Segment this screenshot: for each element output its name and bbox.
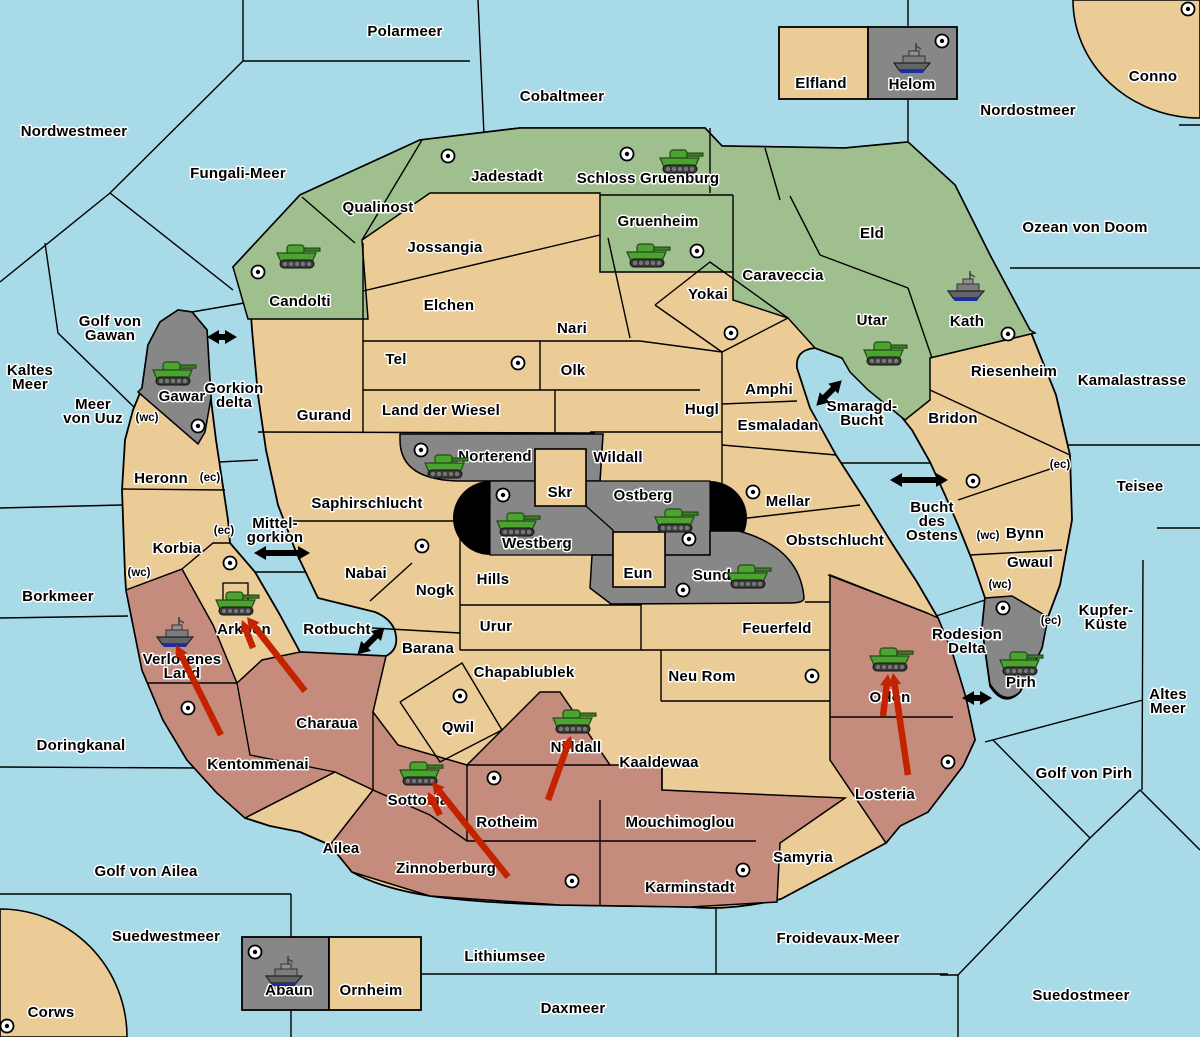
territory-label-urur[interactable]: Urur <box>480 618 512 635</box>
territory-label-text[interactable]: Kaaldewaa <box>619 754 699 771</box>
city-marker <box>967 475 980 488</box>
city-marker <box>1 1020 14 1033</box>
territory-label-amphi[interactable]: Amphi <box>745 381 793 398</box>
territory-label-utar[interactable]: Utar <box>857 312 888 329</box>
territory-label-text[interactable]: Land der Wiesel <box>382 402 500 419</box>
territory-label-conno[interactable]: Conno <box>1129 68 1177 85</box>
sea-label-ozean-von-doom: Ozean von Doom <box>1022 219 1147 236</box>
territory-label-ornheim[interactable]: Ornheim <box>339 982 402 999</box>
territory-label-text[interactable]: Pirh <box>1006 674 1036 691</box>
territory-label-text[interactable]: Amphi <box>745 381 793 398</box>
sea-label-text: Borkmeer <box>22 588 94 605</box>
territory-label-nabai[interactable]: Nabai <box>345 565 387 582</box>
city-marker <box>737 864 750 877</box>
territory-label-text[interactable]: Wildall <box>593 449 643 466</box>
territory-label-gruenheim[interactable]: Gruenheim <box>618 213 699 230</box>
territory-label-text[interactable]: Charaua <box>296 715 358 732</box>
territory-label-bynn[interactable]: Bynn <box>1006 525 1044 542</box>
territory-label-text[interactable]: Neu Rom <box>668 668 735 685</box>
sea-label-text: Froidevaux-Meer <box>776 930 899 947</box>
territory-label-chapablublek[interactable]: Chapablublek <box>474 664 575 681</box>
territory-label-text[interactable]: Jossangia <box>407 239 483 256</box>
territory-label-text[interactable]: Urur <box>480 618 512 635</box>
territory-label-corws[interactable]: Corws <box>28 1004 75 1021</box>
sea-label-kamalastrasse: Kamalastrasse <box>1078 372 1187 389</box>
sea-label-text: Teisee <box>1117 478 1164 495</box>
city-marker <box>192 420 205 433</box>
sea-label-mittel-gorkion: Mittel-gorkion <box>247 515 303 546</box>
territory-label-skr[interactable]: Skr <box>548 484 573 501</box>
sea-label-text: Ozean von Doom <box>1022 219 1147 236</box>
city-marker <box>497 489 510 502</box>
territory-label-text[interactable]: Samyria <box>773 849 833 866</box>
territory-label-kaaldewaa[interactable]: Kaaldewaa <box>619 754 699 771</box>
territory-label-text[interactable]: Nilldall <box>551 739 602 756</box>
sea-label-golf-von-gawan: Golf vonGawan <box>79 313 141 344</box>
territory-label-jossangia[interactable]: Jossangia <box>407 239 483 256</box>
sea-label-text: Fungali-Meer <box>190 165 286 182</box>
territory-label-hugl[interactable]: Hugl <box>685 401 719 418</box>
territory-label-text[interactable]: Feuerfeld <box>742 620 811 637</box>
territory-label-text[interactable]: Rotheim <box>476 814 537 831</box>
territory-label-tel[interactable]: Tel <box>385 351 406 368</box>
territory-label-text[interactable]: Qwil <box>442 719 474 736</box>
sea-label-text: Suedwestmeer <box>112 928 220 945</box>
territory-label-text[interactable]: Corws <box>28 1004 75 1021</box>
city-marker <box>936 35 949 48</box>
city-marker <box>806 670 819 683</box>
territory-label-neu-rom[interactable]: Neu Rom <box>668 668 735 685</box>
territory-label-zinnoberburg[interactable]: Zinnoberburg <box>396 860 496 877</box>
city-marker <box>621 148 634 161</box>
territory-label-kath[interactable]: Kath <box>950 313 984 330</box>
territory-label-text[interactable]: Westberg <box>502 535 572 552</box>
territory-label-text[interactable]: Bridon <box>928 410 978 427</box>
sea-label-text: von Uuz <box>63 410 123 427</box>
territory-label-yokai[interactable]: Yokai <box>688 286 728 303</box>
territory-label-gurand[interactable]: Gurand <box>297 407 352 424</box>
city-marker <box>725 327 738 340</box>
territory-label-text[interactable]: Yokai <box>688 286 728 303</box>
territory-label-text[interactable]: Nogk <box>416 582 455 599</box>
territory-label-charaua[interactable]: Charaua <box>296 715 358 732</box>
territory-label-text[interactable]: Conno <box>1129 68 1177 85</box>
territory-label-text[interactable]: Riesenheim <box>971 363 1057 380</box>
coast-token: (wc) <box>977 530 1000 542</box>
territory-label-text[interactable]: Esmaladan <box>737 417 818 434</box>
coast-token: (ec) <box>1050 459 1071 471</box>
city-marker <box>942 756 955 769</box>
territory-label-qwil[interactable]: Qwil <box>442 719 474 736</box>
territory-label-text[interactable]: Gawar <box>159 388 206 405</box>
territory-label-westberg[interactable]: Westberg <box>502 535 572 552</box>
sea-label-kaltes-meer: KaltesMeer <box>7 362 53 393</box>
sea-label-text: Kamalastrasse <box>1078 372 1187 389</box>
territory-label-sund[interactable]: Sund <box>693 567 731 584</box>
territory-label-text[interactable]: Norterend <box>458 448 531 465</box>
territory-label-text[interactable]: Barana <box>402 640 455 657</box>
sea-label-text: Ostens <box>906 527 958 544</box>
territory-label-text[interactable]: Obstschlucht <box>786 532 884 549</box>
sea-label-text: Daxmeer <box>541 1000 606 1017</box>
sea-label-text: Doringkanal <box>37 737 126 754</box>
territory-label-schloss-gruenburg[interactable]: Schloss Gruenburg <box>577 170 720 187</box>
territory-label-text[interactable]: Karminstadt <box>645 879 735 896</box>
sea-label-cobaltmeer: Cobaltmeer <box>520 88 605 105</box>
sea-label-text: Küste <box>1085 616 1128 633</box>
territory-label-text[interactable]: Chapablublek <box>474 664 575 681</box>
city-marker <box>252 266 265 279</box>
sea-label-golf-von-pirh: Golf von Pirh <box>1036 765 1133 782</box>
sea-label-altes-meer: AltesMeer <box>1149 686 1187 717</box>
territory-border-line <box>123 489 225 490</box>
territory-label-ostberg[interactable]: Ostberg <box>614 487 673 504</box>
sea-label-nordwestmeer: Nordwestmeer <box>21 123 128 140</box>
territory-label-kentommenai[interactable]: Kentommenai <box>207 756 308 773</box>
map-canvas: PolarmeerCobaltmeerNordwestmeerFungali-M… <box>0 0 1200 1037</box>
territory-label-text[interactable]: Schloss Gruenburg <box>577 170 720 187</box>
city-marker <box>416 540 429 553</box>
territory-label-text[interactable]: Jadestadt <box>471 168 543 185</box>
territory-label-text[interactable]: Eun <box>624 565 653 582</box>
sea-label-suedwestmeer: Suedwestmeer <box>112 928 220 945</box>
sea-label-borkmeer: Borkmeer <box>22 588 94 605</box>
city-marker <box>1182 3 1195 16</box>
city-marker <box>442 150 455 163</box>
city-marker <box>997 602 1010 615</box>
territory-label-nilldall[interactable]: Nilldall <box>551 739 602 756</box>
territory-label-riesenheim[interactable]: Riesenheim <box>971 363 1057 380</box>
sea-label-text: Cobaltmeer <box>520 88 605 105</box>
sea-label-kupfer-k-ste: Kupfer-Küste <box>1079 602 1134 633</box>
territory-label-gawar[interactable]: Gawar <box>159 388 206 405</box>
territory-label-caraveccia[interactable]: Caraveccia <box>742 267 824 284</box>
territory-label-text[interactable]: Candolti <box>269 293 331 310</box>
sea-label-text: Nordwestmeer <box>21 123 128 140</box>
sea-label-nordostmeer: Nordostmeer <box>980 102 1076 119</box>
city-marker <box>182 702 195 715</box>
territory-label-rotheim[interactable]: Rotheim <box>476 814 537 831</box>
sea-label-text: Lithiumsee <box>464 948 545 965</box>
territory-shape-ornheim[interactable] <box>329 937 421 1010</box>
territory-label-text[interactable]: Orlon <box>870 689 911 706</box>
territory-label-bridon[interactable]: Bridon <box>928 410 978 427</box>
territory-label-losteria[interactable]: Losteria <box>855 786 915 803</box>
territory-label-helom[interactable]: Helom <box>889 76 936 93</box>
territory-label-candolti[interactable]: Candolti <box>269 293 331 310</box>
territory-label-text[interactable]: Kath <box>950 313 984 330</box>
territory-label-qualinost[interactable]: Qualinost <box>343 199 414 216</box>
sea-label-rotbucht: Rotbucht <box>303 621 370 638</box>
territory-label-heronn[interactable]: Heronn <box>134 470 188 487</box>
sea-label-fungali-meer: Fungali-Meer <box>190 165 286 182</box>
territory-label-text[interactable]: Caraveccia <box>742 267 824 284</box>
territory-label-mellar[interactable]: Mellar <box>766 493 811 510</box>
sea-label-text: Polarmeer <box>367 23 442 40</box>
sea-label-teisee: Teisee <box>1117 478 1164 495</box>
territory-label-text[interactable]: Mellar <box>766 493 811 510</box>
city-marker <box>224 557 237 570</box>
territory-label-text[interactable]: Nari <box>557 320 587 337</box>
territory-label-orlon[interactable]: Orlon <box>870 689 911 706</box>
sea-label-froidevaux-meer: Froidevaux-Meer <box>776 930 899 947</box>
city-marker <box>1002 328 1015 341</box>
territory-label-eld[interactable]: Eld <box>860 225 884 242</box>
territory-label-text[interactable]: Sund <box>693 567 731 584</box>
territory-label-nogk[interactable]: Nogk <box>416 582 455 599</box>
territory-label-norterend[interactable]: Norterend <box>458 448 531 465</box>
territory-label-text[interactable]: Heronn <box>134 470 188 487</box>
territory-label-text[interactable]: Elfland <box>795 75 846 92</box>
sea-label-doringkanal: Doringkanal <box>37 737 126 754</box>
territory-label-text[interactable]: Tel <box>385 351 406 368</box>
territory-label-korbia[interactable]: Korbia <box>153 540 202 557</box>
territory-label-obstschlucht[interactable]: Obstschlucht <box>786 532 884 549</box>
sea-label-text: Bucht <box>840 412 884 429</box>
territory-label-text[interactable]: Elchen <box>424 297 474 314</box>
territory-label-text[interactable]: Helom <box>889 76 936 93</box>
sea-label-text: Nordostmeer <box>980 102 1076 119</box>
city-marker <box>683 533 696 546</box>
sea-label-daxmeer: Daxmeer <box>541 1000 606 1017</box>
territory-label-text[interactable]: Ailea <box>323 840 360 857</box>
sea-label-text: Delta <box>948 640 986 657</box>
territory-label-text[interactable]: Korbia <box>153 540 202 557</box>
city-marker <box>415 444 428 457</box>
territory-label-text[interactable]: Nabai <box>345 565 387 582</box>
sea-label-text: delta <box>216 394 252 411</box>
territory-label-elfland[interactable]: Elfland <box>795 75 846 92</box>
territory-label-text[interactable]: Losteria <box>855 786 915 803</box>
sea-label-text: Golf von Pirh <box>1036 765 1133 782</box>
territory-label-esmaladan[interactable]: Esmaladan <box>737 417 818 434</box>
territory-label-text[interactable]: Hills <box>477 571 510 588</box>
sea-label-text: Suedostmeer <box>1032 987 1129 1004</box>
territory-label-text[interactable]: Gwaul <box>1007 554 1053 571</box>
territory-label-text[interactable]: Olk <box>561 362 586 379</box>
coast-token: (wc) <box>128 567 151 579</box>
sea-border-line <box>0 767 200 768</box>
territory-label-text[interactable]: Skr <box>548 484 573 501</box>
sea-label-text: gorkion <box>247 529 303 546</box>
sea-label-text: Golf von Ailea <box>94 863 198 880</box>
territory-label-karminstadt[interactable]: Karminstadt <box>645 879 735 896</box>
sea-label-text: Meer <box>1150 700 1186 717</box>
territory-label-jadestadt[interactable]: Jadestadt <box>471 168 543 185</box>
territory-label-feuerfeld[interactable]: Feuerfeld <box>742 620 811 637</box>
territory-label-eun[interactable]: Eun <box>624 565 653 582</box>
territory-label-text[interactable]: Eld <box>860 225 884 242</box>
city-marker <box>454 690 467 703</box>
city-marker <box>512 357 525 370</box>
territory-label-text[interactable]: Zinnoberburg <box>396 860 496 877</box>
territory-label-text[interactable]: Ostberg <box>614 487 673 504</box>
territory-label-text[interactable]: Hugl <box>685 401 719 418</box>
territory-label-text[interactable]: Kentommenai <box>207 756 308 773</box>
sea-label-text: Gawan <box>85 327 135 344</box>
game-map: PolarmeerCobaltmeerNordwestmeerFungali-M… <box>0 0 1200 1037</box>
sea-label-text: Meer <box>12 376 48 393</box>
coast-token: (ec) <box>200 472 221 484</box>
territory-label-text[interactable]: Ornheim <box>339 982 402 999</box>
territory-label-text[interactable]: Mouchimoglou <box>625 814 734 831</box>
city-marker <box>249 946 262 959</box>
coast-token: (wc) <box>136 412 159 424</box>
city-marker <box>677 584 690 597</box>
coast-token: (wc) <box>989 579 1012 591</box>
territory-label-text[interactable]: Bynn <box>1006 525 1044 542</box>
territory-label-mouchimoglou[interactable]: Mouchimoglou <box>625 814 734 831</box>
territory-label-gwaul[interactable]: Gwaul <box>1007 554 1053 571</box>
territory-label-barana[interactable]: Barana <box>402 640 455 657</box>
city-marker <box>566 875 579 888</box>
sea-label-golf-von-ailea: Golf von Ailea <box>94 863 198 880</box>
territory-label-text[interactable]: Qualinost <box>343 199 414 216</box>
sea-label-polarmeer: Polarmeer <box>367 23 442 40</box>
territory-label-hills[interactable]: Hills <box>477 571 510 588</box>
city-marker <box>747 486 760 499</box>
city-marker <box>488 772 501 785</box>
territory-label-text[interactable]: Gruenheim <box>618 213 699 230</box>
coast-token: (ec) <box>1041 615 1062 627</box>
territory-label-saphirschlucht[interactable]: Saphirschlucht <box>311 495 422 512</box>
territory-label-olk[interactable]: Olk <box>561 362 586 379</box>
territory-label-pirh[interactable]: Pirh <box>1006 674 1036 691</box>
territory-label-text[interactable]: Utar <box>857 312 888 329</box>
territory-label-elchen[interactable]: Elchen <box>424 297 474 314</box>
sea-label-lithiumsee: Lithiumsee <box>464 948 545 965</box>
territory-label-wildall[interactable]: Wildall <box>593 449 643 466</box>
sea-label-text: Rotbucht <box>303 621 370 638</box>
coast-token: (ec) <box>214 525 235 537</box>
territory-label-land-der-wiesel[interactable]: Land der Wiesel <box>382 402 500 419</box>
city-marker <box>691 245 704 258</box>
territory-label-text[interactable]: Gurand <box>297 407 352 424</box>
territory-label-text[interactable]: Saphirschlucht <box>311 495 422 512</box>
sea-label-suedostmeer: Suedostmeer <box>1032 987 1129 1004</box>
territory-label-nari[interactable]: Nari <box>557 320 587 337</box>
territory-label-ailea[interactable]: Ailea <box>323 840 360 857</box>
territory-label-samyria[interactable]: Samyria <box>773 849 833 866</box>
